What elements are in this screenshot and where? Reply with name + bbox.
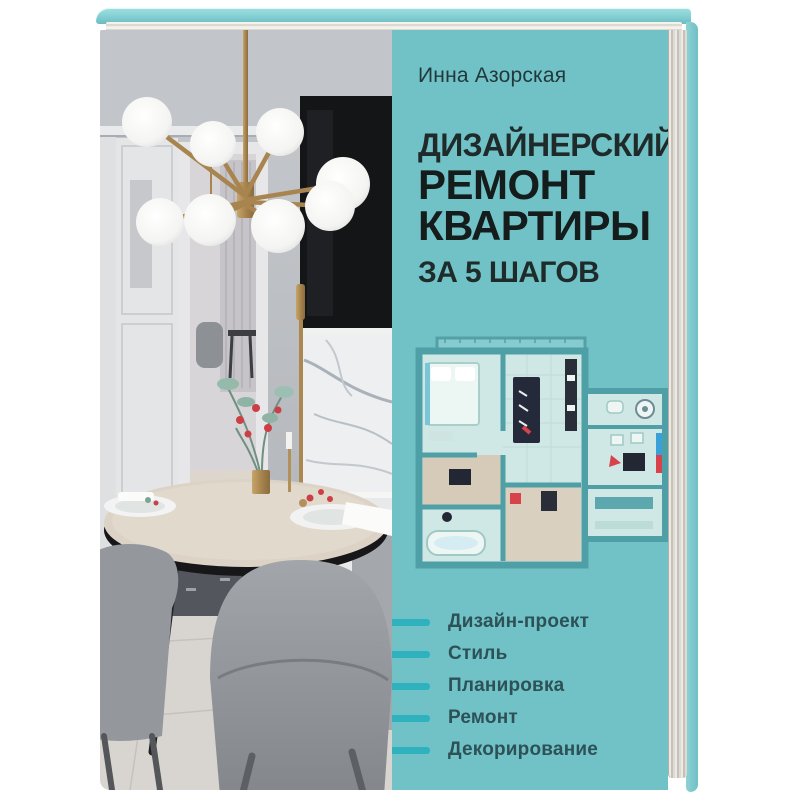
book-front-cover: Инна Азорская ДИЗАЙНЕРСКИЙ РЕМОНТ КВАРТИ… <box>100 30 668 790</box>
feature-item: Декорирование <box>392 734 668 766</box>
interior-photo-illustration <box>100 30 392 790</box>
cover-teal-panel: Инна Азорская ДИЗАЙНЕРСКИЙ РЕМОНТ КВАРТИ… <box>392 30 668 790</box>
title-line-1: ДИЗАЙНЕРСКИЙ <box>418 126 662 164</box>
book-page-fore-edge <box>668 30 687 778</box>
feature-item: Планировка <box>392 670 668 702</box>
feature-label: Планировка <box>448 675 564 697</box>
book-title: ДИЗАЙНЕРСКИЙ РЕМОНТ КВАРТИРЫ ЗА 5 ШАГОВ <box>418 126 662 292</box>
interior-photo <box>100 30 392 790</box>
feature-label: Стиль <box>448 643 507 665</box>
title-line-4: ЗА 5 ШАГОВ <box>418 254 662 292</box>
floor-plan-illustration <box>415 335 668 570</box>
feature-dash-icon <box>392 747 430 754</box>
feature-label: Дизайн-проект <box>448 611 589 633</box>
feature-label: Ремонт <box>448 707 518 729</box>
book-product-shot: Инна Азорская ДИЗАЙНЕРСКИЙ РЕМОНТ КВАРТИ… <box>0 0 800 800</box>
feature-item: Стиль <box>392 638 668 670</box>
title-line-2: РЕМОНТ <box>418 164 662 205</box>
author-name: Инна Азорская <box>418 64 566 88</box>
feature-item: Ремонт <box>392 702 668 734</box>
feature-dash-icon <box>392 619 430 626</box>
book-back-cover-edge <box>686 22 698 792</box>
title-line-3: КВАРТИРЫ <box>418 205 662 246</box>
feature-dash-icon <box>392 683 430 690</box>
feature-item: Дизайн-проект <box>392 606 668 638</box>
feature-label: Декорирование <box>448 739 598 761</box>
feature-dash-icon <box>392 651 430 658</box>
feature-dash-icon <box>392 715 430 722</box>
apartment-floor-plan <box>415 335 668 570</box>
features-list: Дизайн-проект Стиль Планировка Ремонт Де… <box>392 606 668 766</box>
